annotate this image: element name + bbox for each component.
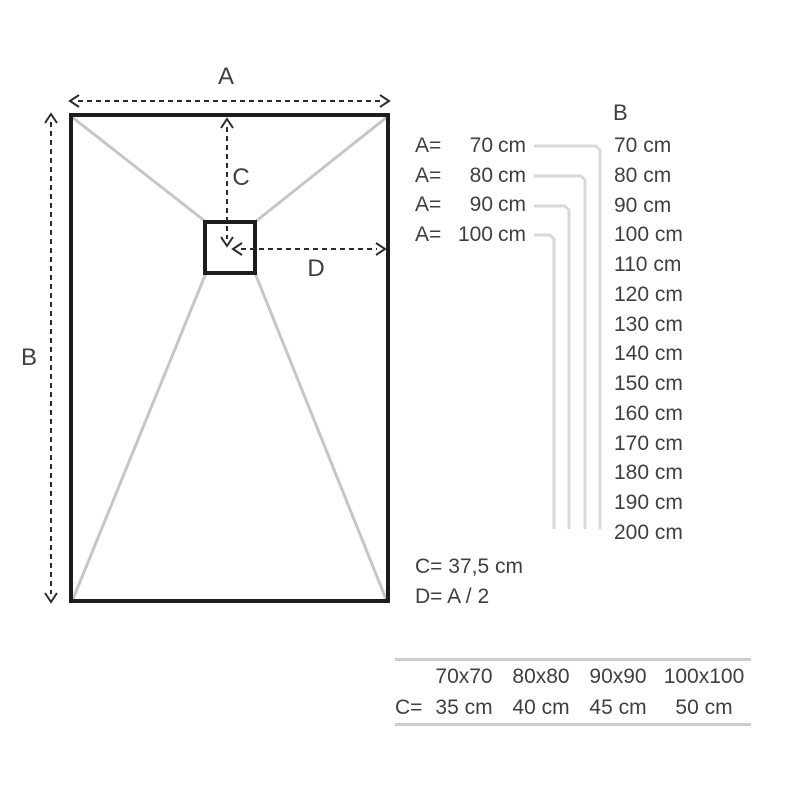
a-label: A= bbox=[415, 134, 445, 158]
a-width-row: A= 90 cm bbox=[415, 191, 535, 221]
b-length-item: 90 cm bbox=[614, 191, 683, 221]
slope-line-bottom-right bbox=[255, 273, 386, 599]
bracket-a80 bbox=[534, 176, 585, 529]
dim-b-label: B bbox=[21, 344, 37, 372]
a-unit: cm bbox=[498, 134, 526, 158]
b-length-item: 140 cm bbox=[614, 339, 683, 369]
b-length-item: 170 cm bbox=[614, 429, 683, 459]
dim-b-arrowhead-top bbox=[45, 114, 57, 123]
b-length-item: 110 cm bbox=[614, 250, 683, 280]
page: { "page": { "background": "#ffffff" }, "… bbox=[0, 0, 800, 800]
a-label: A= bbox=[415, 193, 445, 217]
b-column-header: B bbox=[613, 100, 628, 126]
b-length-item: 100 cm bbox=[614, 220, 683, 250]
a-value: 90 bbox=[445, 193, 493, 217]
size-table-header-row: 70x70 80x80 90x90 100x100 bbox=[395, 661, 751, 692]
slope-line-top-right bbox=[255, 117, 387, 222]
b-length-item: 150 cm bbox=[614, 369, 683, 399]
a-width-row: A= 70 cm bbox=[415, 131, 535, 161]
bracket-a70 bbox=[534, 146, 600, 529]
b-length-item: 130 cm bbox=[614, 310, 683, 340]
dim-c-label: C bbox=[232, 164, 249, 192]
a-width-row: A= 100 cm bbox=[415, 220, 535, 250]
size-column-header: 90x90 bbox=[579, 661, 657, 692]
slope-line-top-left bbox=[72, 117, 206, 222]
size-column-header: 80x80 bbox=[503, 661, 579, 692]
size-column-header: 100x100 bbox=[657, 661, 751, 692]
dim-c-arrowhead-top bbox=[221, 119, 233, 128]
size-table-value-row: C= 35 cm 40 cm 45 cm 50 cm bbox=[395, 692, 751, 723]
bracket-a100 bbox=[534, 235, 554, 529]
dim-d-label: D bbox=[307, 255, 324, 283]
b-length-item: 80 cm bbox=[614, 161, 683, 191]
c-value: 35 cm bbox=[425, 692, 503, 723]
a-unit: cm bbox=[498, 223, 526, 247]
a-unit: cm bbox=[498, 193, 526, 217]
a-value: 100 bbox=[445, 223, 493, 247]
b-length-list: 70 cm 80 cm 90 cm 100 cm 110 cm 120 cm 1… bbox=[614, 131, 683, 548]
b-length-item: 160 cm bbox=[614, 399, 683, 429]
drain-square bbox=[205, 222, 255, 273]
c-value: 40 cm bbox=[503, 692, 579, 723]
dim-a-label: A bbox=[218, 63, 234, 91]
c-value: 45 cm bbox=[579, 692, 657, 723]
b-length-item: 120 cm bbox=[614, 280, 683, 310]
dim-a-arrowhead-right bbox=[380, 95, 389, 107]
c-formula-note: C= 37,5 cm bbox=[415, 555, 523, 579]
dim-a-arrowhead-left bbox=[70, 95, 79, 107]
size-table-corner-cell bbox=[395, 661, 425, 692]
a-label: A= bbox=[415, 164, 445, 188]
d-formula-note: D= A / 2 bbox=[415, 585, 489, 609]
c-row-label: C= bbox=[395, 692, 425, 723]
a-value: 80 bbox=[445, 164, 493, 188]
a-width-list: A= 70 cm A= 80 cm A= 90 cm A= 100 cm bbox=[415, 131, 535, 250]
size-table: 70x70 80x80 90x90 100x100 C= 35 cm 40 cm… bbox=[395, 658, 751, 726]
a-label: A= bbox=[415, 223, 445, 247]
bracket-a90 bbox=[534, 206, 569, 529]
dim-b-arrowhead-bottom bbox=[45, 593, 57, 602]
size-column-header: 70x70 bbox=[425, 661, 503, 692]
b-length-item: 70 cm bbox=[614, 131, 683, 161]
a-value: 70 bbox=[445, 134, 493, 158]
c-value: 50 cm bbox=[657, 692, 751, 723]
b-length-item: 200 cm bbox=[614, 518, 683, 548]
dim-d-arrowhead-right bbox=[376, 243, 385, 255]
b-length-item: 180 cm bbox=[614, 458, 683, 488]
slope-line-bottom-left bbox=[73, 273, 206, 599]
tray-outline bbox=[71, 115, 388, 601]
b-length-item: 190 cm bbox=[614, 488, 683, 518]
a-unit: cm bbox=[498, 164, 526, 188]
a-width-row: A= 80 cm bbox=[415, 161, 535, 191]
